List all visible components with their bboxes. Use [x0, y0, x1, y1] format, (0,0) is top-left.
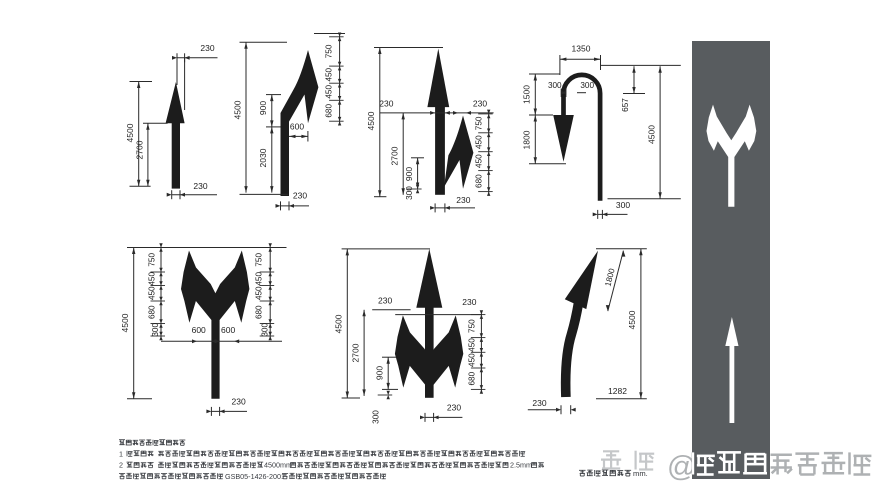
svg-text:680: 680 [475, 174, 484, 188]
svg-text:450: 450 [255, 272, 264, 286]
svg-text:2: 2 [119, 461, 123, 470]
svg-text:450: 450 [475, 135, 484, 149]
svg-text:300: 300 [371, 410, 380, 424]
svg-text:1: 1 [119, 449, 123, 458]
svg-text:230: 230 [462, 297, 476, 307]
svg-text:750: 750 [467, 319, 476, 333]
svg-text:1350: 1350 [572, 44, 591, 54]
svg-text:230: 230 [232, 397, 246, 407]
svg-text:600: 600 [221, 325, 235, 335]
svg-text:230: 230 [200, 43, 214, 53]
svg-text:2700: 2700 [351, 343, 361, 362]
svg-text:600: 600 [192, 325, 206, 335]
svg-text:300: 300 [260, 323, 269, 337]
svg-text:230: 230 [532, 398, 546, 408]
svg-text:300: 300 [548, 81, 562, 90]
svg-text:2700: 2700 [390, 146, 400, 165]
svg-text:230: 230 [378, 296, 392, 306]
svg-text:2030: 2030 [258, 148, 268, 167]
svg-text:750: 750 [325, 44, 334, 58]
svg-text:450: 450 [255, 286, 264, 300]
svg-text:GSB05-1426-2001: GSB05-1426-2001 [225, 472, 285, 481]
svg-text:750: 750 [475, 116, 484, 130]
svg-text:450: 450 [325, 85, 334, 99]
svg-text:900: 900 [404, 167, 414, 181]
svg-text:230: 230 [447, 403, 461, 413]
svg-text:230: 230 [473, 99, 487, 109]
svg-text:230: 230 [379, 99, 393, 109]
svg-text:300: 300 [151, 323, 160, 337]
svg-text:1282: 1282 [608, 386, 627, 396]
svg-text:900: 900 [375, 366, 385, 380]
svg-text:750: 750 [255, 253, 264, 267]
svg-text:300: 300 [580, 81, 594, 90]
svg-text:450: 450 [475, 154, 484, 168]
svg-text:2700: 2700 [134, 140, 144, 159]
svg-text:600: 600 [290, 122, 304, 132]
svg-text:230: 230 [293, 191, 307, 201]
svg-text:230: 230 [193, 181, 207, 191]
svg-text:680: 680 [148, 305, 157, 319]
svg-text:230: 230 [456, 195, 470, 205]
svg-text:680: 680 [467, 371, 476, 385]
svg-text:680: 680 [325, 104, 334, 118]
svg-text:750: 750 [148, 253, 157, 267]
svg-text:680: 680 [255, 305, 264, 319]
svg-text:450: 450 [467, 353, 476, 367]
svg-text:900: 900 [258, 101, 268, 115]
svg-text:2.5mm: 2.5mm [510, 461, 532, 470]
svg-text:4500: 4500 [120, 313, 130, 332]
svg-text:657: 657 [621, 98, 630, 112]
svg-text:1800: 1800 [522, 130, 532, 149]
svg-text:4500: 4500 [334, 314, 344, 333]
svg-text:450: 450 [467, 338, 476, 352]
svg-text:300: 300 [405, 186, 414, 200]
svg-text:1500: 1500 [522, 85, 532, 104]
svg-text:4500mm: 4500mm [264, 461, 292, 470]
svg-text:450: 450 [148, 272, 157, 286]
svg-text:4500: 4500 [125, 123, 135, 142]
svg-text:450: 450 [325, 67, 334, 81]
svg-text:4500: 4500 [627, 310, 637, 329]
svg-text:300: 300 [616, 200, 630, 210]
svg-text:450: 450 [148, 286, 157, 300]
svg-text:4500: 4500 [232, 100, 242, 119]
svg-text:4500: 4500 [646, 125, 656, 144]
svg-text:4500: 4500 [366, 111, 376, 130]
